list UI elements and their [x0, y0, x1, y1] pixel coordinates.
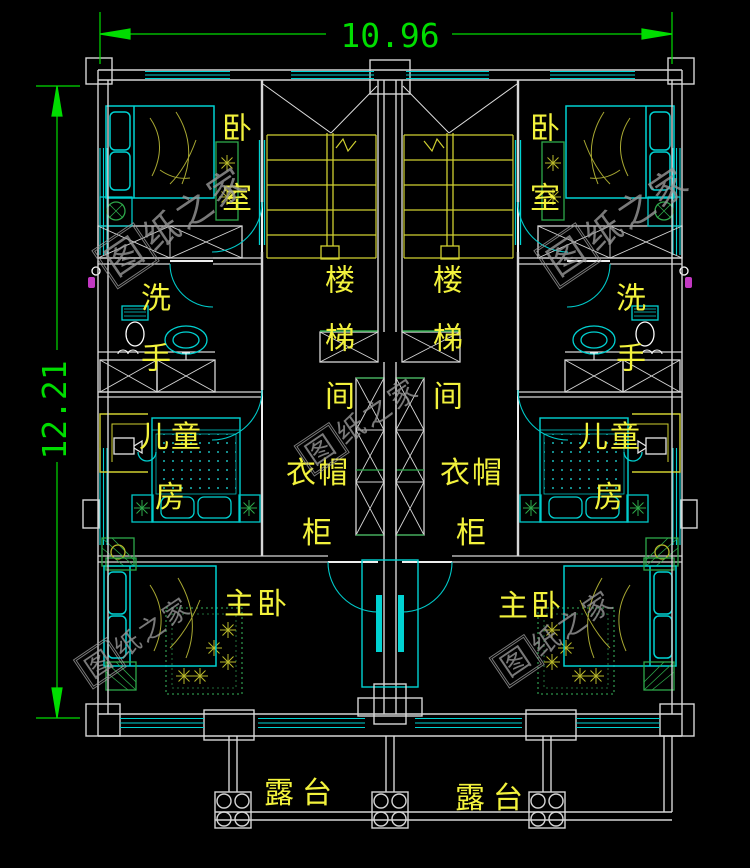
label-wardrobe-right: 衣帽柜 [438, 444, 506, 564]
label-stairwell-right: 楼梯间 [429, 264, 459, 438]
label-terrace-left: 露台 [264, 779, 340, 809]
dimension-width: 10.96 [330, 16, 450, 55]
label-children-left: 儿童房 [137, 408, 205, 528]
label-master-left: 主卧 [224, 590, 290, 620]
label-washroom-right: 洗手 [612, 282, 642, 402]
center-column [358, 684, 422, 724]
center-niche [362, 560, 418, 687]
dimension-height: 12.21 [35, 348, 79, 472]
top-windows [145, 72, 635, 79]
bottom-windows [120, 719, 660, 728]
label-washroom-left: 洗手 [137, 282, 167, 402]
label-terrace-right: 露台 [455, 784, 531, 814]
label-children-right: 儿童房 [576, 408, 644, 528]
floorplan-page: 10.96 12.21 卧室 卧室 洗手 洗手 楼梯间 楼梯间 衣帽柜 衣帽柜 … [0, 0, 750, 868]
